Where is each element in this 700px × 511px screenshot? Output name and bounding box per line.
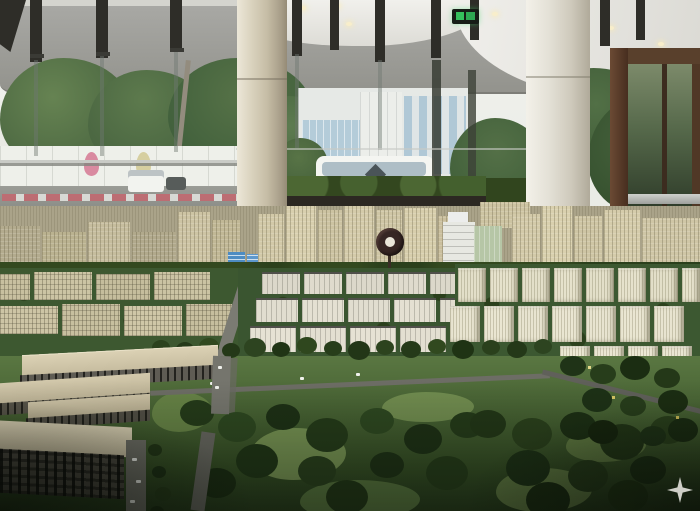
planter-box (274, 196, 486, 206)
exit-sign-glyph (456, 12, 464, 20)
slab-tower (458, 268, 486, 302)
model-tower (344, 206, 374, 270)
glass-fin (170, 0, 182, 52)
slab-tower (682, 268, 700, 302)
tree-cluster (560, 356, 586, 376)
industrial-block (400, 326, 446, 352)
exit-sign (452, 9, 479, 24)
slab-tower (450, 306, 480, 342)
glass-fin (431, 0, 441, 58)
glass-fin-lower (34, 60, 38, 156)
residential-block (96, 274, 150, 300)
glass-fin (292, 0, 302, 56)
model-tower (604, 210, 640, 270)
model-tower (404, 208, 436, 270)
balustrade-rail (0, 160, 238, 163)
model-tower (642, 218, 700, 268)
downlight (346, 22, 352, 26)
slab-tower (618, 268, 646, 302)
industrial-block (348, 298, 390, 322)
column-seam (526, 76, 590, 78)
slab-tower (586, 268, 614, 302)
vignette-corner-right (460, 400, 700, 511)
industrial-block (300, 326, 346, 352)
glass-fin (636, 0, 645, 40)
glass-fin-lower (295, 54, 299, 148)
entrance-frame-right (692, 64, 700, 212)
structural-column-left (237, 0, 287, 215)
model-tower (542, 206, 572, 270)
slab-tower (654, 306, 684, 342)
slab-tower (490, 268, 518, 302)
downlight (658, 42, 664, 46)
industrial-block (256, 298, 298, 322)
mini-car (356, 373, 360, 376)
glass-fin (375, 0, 385, 62)
industrial-block (394, 298, 436, 322)
industrial-block (302, 298, 344, 322)
industrial-block (430, 272, 456, 294)
structural-column-right (526, 0, 590, 206)
white-van (128, 170, 164, 192)
glass-fin-lower (100, 56, 104, 156)
spider-bracket (30, 54, 44, 58)
vignette-corner-left (0, 400, 260, 511)
downlight (492, 12, 498, 16)
residential-block (34, 272, 92, 300)
entrance-mullion (662, 64, 667, 212)
slab-tower (522, 268, 550, 302)
glass-fin (30, 0, 42, 62)
glass-fin (600, 0, 610, 46)
slab-tower (518, 306, 548, 342)
showroom-photo (0, 0, 700, 511)
slab-tower (552, 306, 582, 342)
model-tower (286, 206, 316, 270)
residential-block (0, 274, 30, 300)
slab-tower (484, 306, 514, 342)
spider-bracket (96, 52, 110, 56)
slab-tower (586, 306, 616, 342)
clock-face (385, 237, 395, 247)
column-seam (237, 78, 287, 80)
glass-fin-lower (378, 60, 382, 150)
entrance-frame-left (610, 48, 628, 212)
residential-block (154, 272, 210, 300)
glass-fin (330, 0, 339, 50)
dark-car (166, 177, 186, 190)
slab-tower (650, 268, 678, 302)
industrial-block (262, 272, 300, 294)
industrial-block (350, 326, 396, 352)
spider-bracket (170, 48, 184, 52)
slab-tower (620, 306, 650, 342)
residential-block (0, 306, 58, 334)
exit-sign-glyph (466, 12, 475, 20)
lit-window-dot (588, 366, 591, 369)
mini-car (218, 366, 222, 369)
glass-fin (96, 0, 108, 58)
industrial-block (388, 272, 426, 294)
residential-block (124, 306, 182, 336)
industrial-block (346, 272, 384, 294)
glass-fin-lower (174, 50, 178, 152)
industrial-block (304, 272, 342, 294)
entrance-bottom-rail (628, 194, 700, 204)
model-tower (318, 210, 342, 270)
slab-tower (554, 268, 582, 302)
industrial-block (250, 326, 296, 352)
residential-block (62, 304, 120, 336)
poster-drop-pink (84, 152, 99, 176)
